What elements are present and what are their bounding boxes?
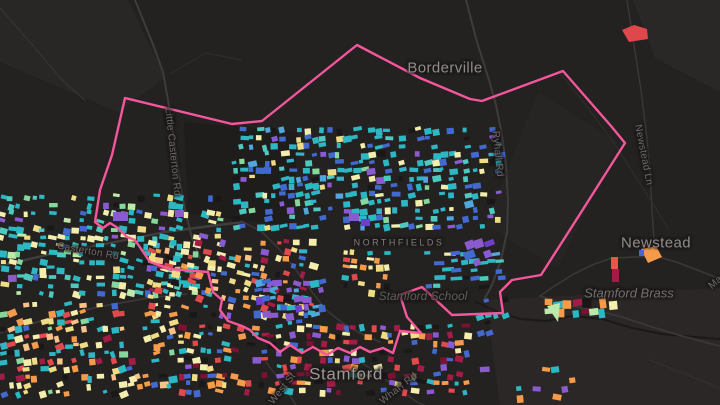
building [385, 136, 393, 140]
building [432, 175, 442, 183]
building [265, 209, 273, 215]
building [23, 242, 31, 249]
building [350, 161, 358, 166]
building [286, 287, 292, 292]
building [71, 357, 77, 363]
building [168, 202, 176, 210]
building [249, 167, 254, 172]
building [111, 327, 119, 334]
building [178, 341, 184, 344]
building [240, 168, 248, 172]
building [496, 142, 502, 146]
building [455, 382, 459, 386]
building [169, 292, 175, 297]
building [251, 272, 259, 276]
building [264, 151, 269, 156]
building [464, 136, 470, 140]
building [208, 332, 213, 336]
building [433, 371, 441, 377]
building [455, 355, 464, 363]
building [79, 226, 87, 232]
building [87, 225, 93, 230]
building [433, 284, 440, 288]
building [387, 356, 394, 363]
building [294, 288, 299, 292]
building [269, 296, 275, 300]
building [319, 127, 324, 133]
building [263, 288, 270, 293]
building [119, 390, 129, 399]
building [350, 372, 358, 378]
building [383, 159, 390, 166]
building [561, 386, 568, 393]
building [291, 247, 298, 253]
building [336, 128, 342, 135]
building [359, 160, 363, 164]
building [169, 311, 178, 317]
building [239, 159, 245, 165]
building [47, 265, 55, 268]
building [297, 183, 303, 187]
building [183, 241, 190, 248]
building [40, 274, 47, 278]
building [447, 216, 454, 220]
building [376, 214, 383, 220]
building [327, 372, 335, 379]
building [14, 325, 23, 333]
building [48, 318, 54, 325]
building [447, 331, 453, 338]
building [15, 251, 20, 257]
building [232, 216, 240, 222]
building [32, 357, 38, 365]
building [271, 160, 276, 166]
building [389, 380, 396, 386]
building [384, 198, 390, 202]
building [409, 177, 414, 182]
building [164, 248, 170, 255]
building [244, 247, 252, 251]
building [415, 217, 422, 220]
building [495, 259, 503, 263]
building [426, 333, 433, 340]
building [86, 384, 91, 391]
building [279, 201, 284, 207]
building [376, 264, 384, 271]
building [16, 291, 21, 295]
building [48, 235, 57, 241]
building [14, 265, 21, 270]
building [320, 357, 326, 364]
building [112, 290, 117, 297]
building [350, 364, 359, 372]
building [181, 304, 189, 310]
building [449, 168, 458, 175]
building [360, 191, 367, 199]
building [94, 235, 103, 241]
building [78, 252, 83, 257]
building [297, 142, 304, 150]
building [368, 200, 375, 206]
building [299, 388, 306, 394]
building [327, 380, 336, 387]
building [368, 289, 375, 297]
building [87, 376, 91, 383]
building [351, 274, 357, 281]
building [318, 305, 326, 313]
building [230, 373, 239, 380]
building [128, 209, 134, 215]
building [0, 391, 8, 398]
purple-block-4 [361, 219, 370, 226]
building [296, 372, 304, 376]
building [208, 195, 213, 202]
building [279, 166, 285, 171]
building [337, 168, 344, 173]
newstead-orange-building [641, 246, 662, 263]
building [312, 183, 319, 191]
building [189, 273, 195, 279]
building [336, 193, 344, 198]
building [222, 382, 226, 388]
building [270, 143, 277, 149]
building [169, 349, 175, 355]
building [233, 168, 238, 174]
building [359, 209, 368, 216]
building [495, 169, 501, 174]
building [8, 275, 17, 282]
building [416, 379, 425, 384]
building [343, 355, 349, 362]
building [462, 276, 470, 280]
building [366, 168, 375, 175]
building [17, 284, 23, 288]
building [306, 333, 312, 340]
building [289, 184, 295, 190]
building [39, 195, 44, 199]
building [366, 390, 375, 396]
building [39, 291, 44, 296]
building [176, 217, 183, 222]
building [96, 342, 103, 349]
building [178, 324, 188, 332]
building [6, 341, 16, 348]
building [448, 192, 454, 198]
road-field-line-3 [170, 53, 242, 74]
fields-layer [0, 0, 720, 405]
building [431, 144, 438, 149]
building [283, 270, 290, 276]
building [288, 193, 295, 199]
building [369, 176, 376, 183]
building [261, 372, 267, 378]
building [126, 366, 132, 371]
building [7, 350, 15, 355]
building [275, 324, 282, 329]
building [297, 356, 302, 363]
building [461, 259, 469, 265]
building [432, 225, 440, 230]
building [160, 211, 167, 216]
building [159, 374, 167, 378]
building [417, 136, 425, 142]
building [376, 283, 381, 289]
building [256, 167, 265, 174]
building [432, 129, 440, 136]
building [295, 191, 304, 198]
building [23, 359, 31, 366]
building [456, 224, 463, 230]
building [32, 302, 37, 307]
building [423, 176, 428, 182]
building [451, 258, 458, 262]
building [228, 303, 234, 310]
building [0, 217, 6, 222]
building [150, 332, 159, 339]
building [297, 325, 305, 332]
building [318, 136, 325, 142]
building [426, 324, 432, 329]
building [371, 356, 376, 362]
building [89, 359, 96, 366]
building [171, 240, 177, 246]
building [265, 127, 271, 133]
building [7, 196, 13, 201]
building [143, 244, 148, 251]
building [233, 183, 240, 190]
building [463, 380, 469, 385]
building [223, 347, 232, 353]
building [14, 335, 24, 344]
building [31, 376, 37, 383]
building [119, 204, 125, 209]
building [264, 199, 269, 203]
building [404, 373, 412, 377]
building [433, 153, 441, 160]
building [302, 176, 308, 182]
purple-block-1 [113, 212, 128, 221]
building [184, 355, 194, 362]
building [289, 223, 297, 229]
building [337, 143, 341, 148]
building [47, 225, 54, 230]
building [285, 313, 294, 322]
building [358, 373, 363, 378]
building [582, 298, 592, 307]
building [0, 360, 7, 366]
building [1, 194, 8, 199]
building [261, 349, 267, 353]
building [276, 334, 282, 339]
building [184, 212, 189, 218]
building [351, 174, 360, 181]
building [448, 388, 454, 393]
road-newstead-east-rd [656, 256, 720, 279]
building [304, 363, 312, 371]
building [207, 265, 215, 271]
building [151, 218, 158, 224]
building [112, 235, 118, 239]
building [349, 340, 357, 345]
building [368, 127, 376, 133]
building [328, 333, 336, 339]
building [243, 303, 251, 309]
building [599, 298, 607, 309]
building [353, 126, 362, 131]
building [337, 177, 344, 181]
building [207, 349, 211, 354]
building [254, 288, 262, 292]
building [208, 325, 212, 329]
building [478, 285, 489, 290]
building [39, 344, 44, 350]
building [79, 342, 88, 349]
building [96, 260, 105, 265]
building [260, 265, 266, 272]
building [425, 136, 430, 140]
building [244, 389, 250, 396]
building [185, 364, 192, 369]
building [23, 390, 28, 395]
building [210, 272, 216, 277]
building [573, 299, 584, 307]
building [23, 382, 31, 389]
building [237, 379, 246, 387]
building [472, 193, 479, 200]
building [283, 239, 289, 244]
building [221, 271, 227, 276]
building [416, 183, 422, 191]
building [283, 280, 288, 283]
building [119, 292, 126, 300]
building [167, 334, 174, 339]
building [305, 182, 314, 190]
building [87, 196, 94, 201]
building [313, 325, 322, 329]
building [252, 326, 260, 331]
building [352, 358, 360, 364]
building [374, 258, 380, 264]
building [0, 311, 8, 318]
building [73, 258, 79, 262]
building [390, 183, 397, 188]
purple-block-3 [349, 213, 359, 221]
building [498, 275, 506, 280]
building [112, 251, 117, 256]
building [193, 363, 200, 368]
building [360, 264, 367, 270]
map-canvas[interactable]: BordervilleNewsteadStamfordStamford Bras… [0, 0, 720, 405]
building [439, 167, 444, 171]
building [164, 305, 171, 309]
building [233, 199, 241, 205]
building [56, 243, 64, 247]
building [423, 168, 431, 174]
building [159, 226, 166, 230]
building [81, 243, 87, 247]
building [15, 391, 22, 399]
building [464, 200, 474, 209]
building [63, 391, 69, 397]
building [369, 191, 375, 196]
building [48, 366, 57, 373]
building [65, 236, 70, 240]
building [142, 326, 147, 330]
building [259, 382, 264, 388]
building [165, 296, 171, 301]
building [319, 215, 326, 221]
building [33, 273, 39, 280]
building [178, 334, 183, 338]
building [312, 152, 318, 157]
building [80, 236, 85, 240]
building [165, 255, 174, 261]
building [409, 167, 418, 172]
building [375, 185, 382, 190]
building [463, 159, 469, 165]
building [471, 152, 480, 159]
building [96, 303, 102, 308]
building [240, 127, 247, 132]
building [451, 276, 463, 280]
building [110, 390, 119, 398]
building [424, 128, 432, 135]
building [434, 275, 445, 280]
building [49, 211, 57, 215]
building [343, 201, 350, 208]
building [309, 262, 319, 271]
building [367, 251, 373, 256]
building [87, 210, 92, 215]
building [208, 374, 217, 378]
building [487, 215, 493, 219]
building [399, 144, 406, 148]
building [319, 184, 325, 190]
building [432, 348, 438, 354]
building [144, 381, 151, 387]
building [424, 251, 430, 255]
building [344, 224, 351, 230]
building [113, 266, 120, 273]
cluster-stamford-core [178, 323, 473, 397]
building [447, 183, 456, 190]
building [465, 184, 473, 189]
building [227, 296, 236, 303]
building [387, 333, 391, 338]
building [465, 145, 472, 149]
building [111, 374, 116, 381]
building [462, 216, 469, 224]
building [376, 208, 382, 214]
building [24, 334, 30, 339]
building [415, 151, 420, 157]
building [312, 332, 321, 338]
building [257, 127, 264, 131]
building [267, 387, 275, 395]
building [207, 381, 216, 389]
building [39, 390, 47, 399]
building [479, 144, 487, 149]
building [495, 269, 502, 274]
building [479, 168, 485, 174]
building [473, 168, 478, 172]
building [516, 386, 522, 391]
building [283, 256, 290, 262]
building [288, 321, 293, 325]
building [265, 161, 270, 167]
building [54, 335, 60, 343]
building [319, 278, 327, 284]
